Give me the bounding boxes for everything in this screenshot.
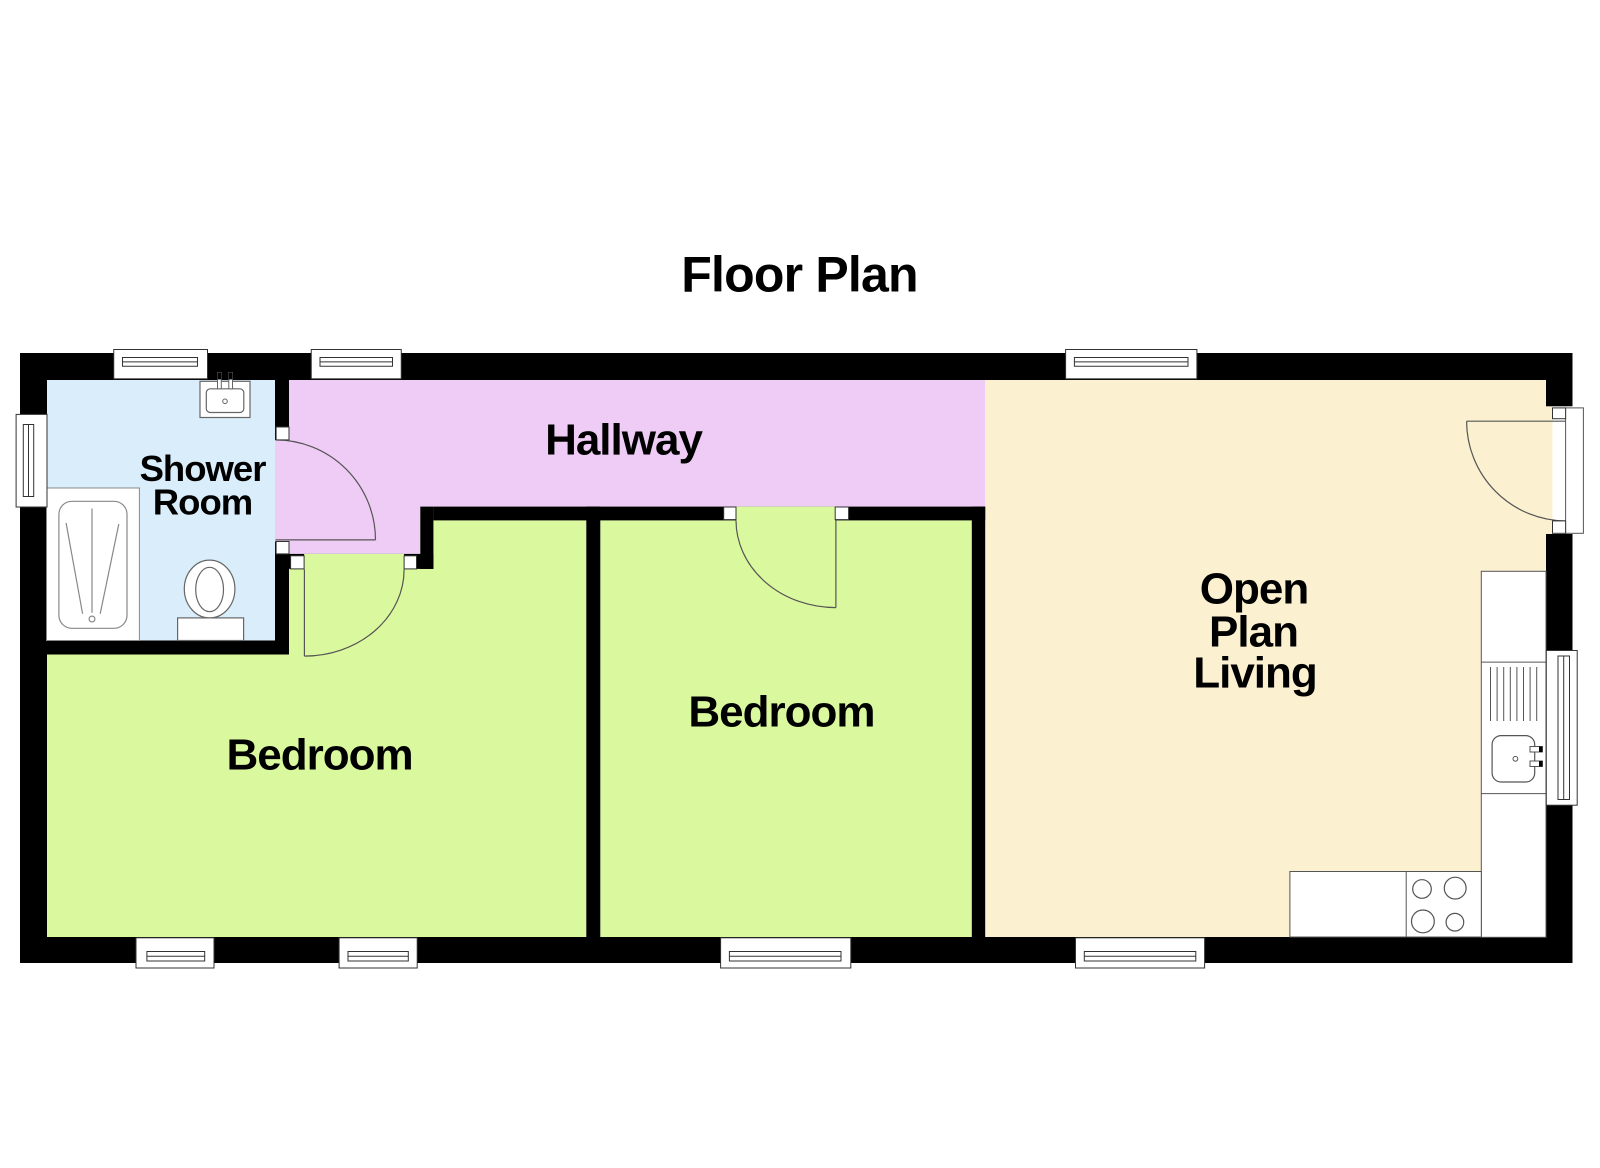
svg-text:Floor Plan: Floor Plan xyxy=(681,246,917,302)
svg-text:Room: Room xyxy=(153,482,252,523)
svg-text:Bedroom: Bedroom xyxy=(688,687,874,736)
svg-text:Living: Living xyxy=(1193,649,1317,698)
svg-text:Hallway: Hallway xyxy=(545,415,703,464)
svg-text:Bedroom: Bedroom xyxy=(227,731,413,780)
svg-text:Open: Open xyxy=(1200,564,1308,613)
